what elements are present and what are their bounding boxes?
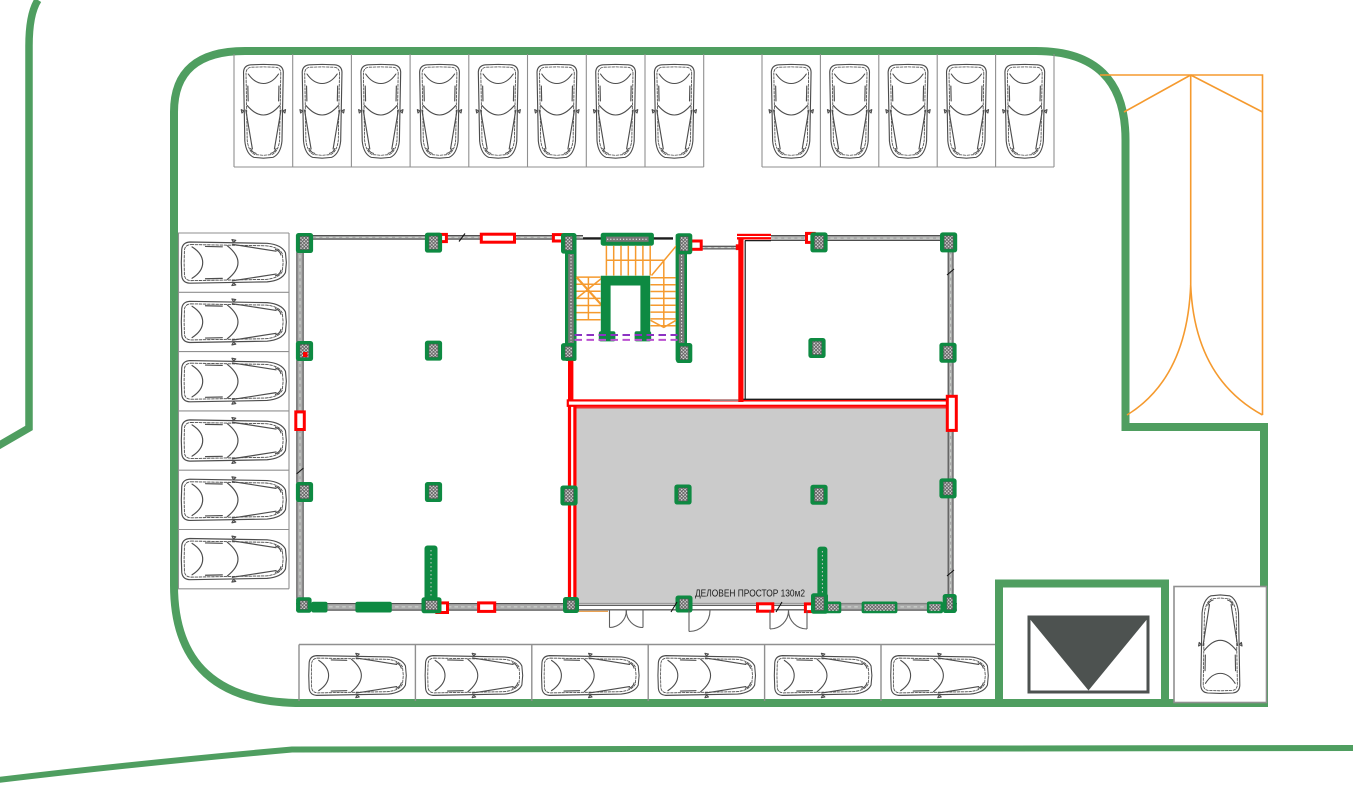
svg-text:ДЕЛОВЕН ПРОСТОР 130м2: ДЕЛОВЕН ПРОСТОР 130м2	[695, 589, 805, 600]
